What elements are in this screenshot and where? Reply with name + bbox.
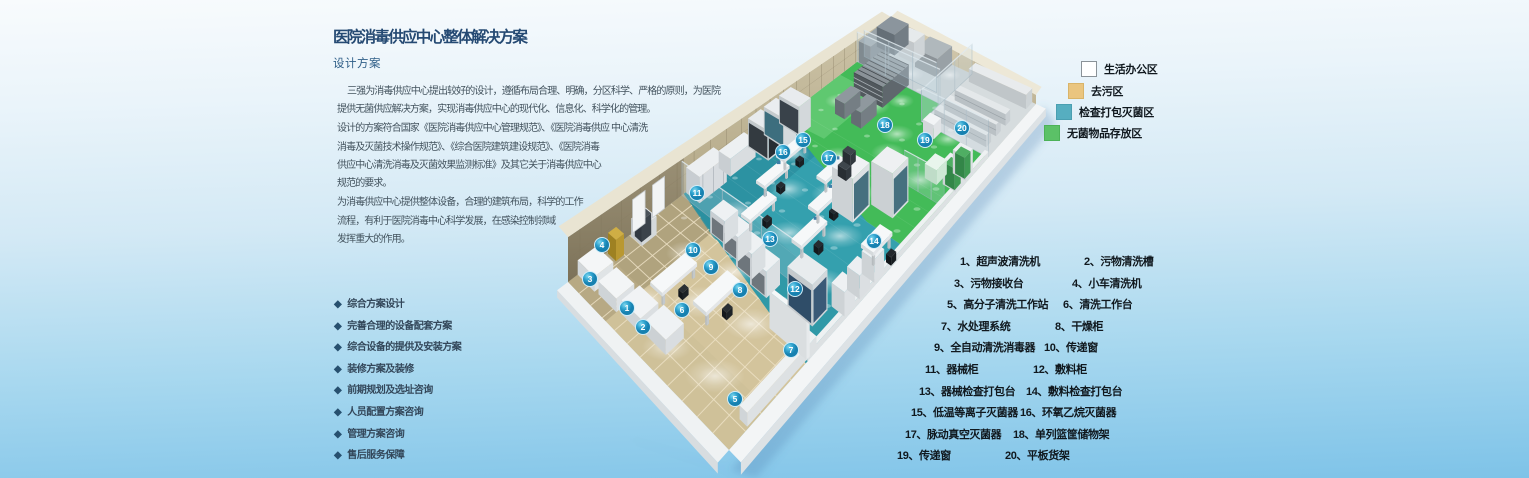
svg-text:4: 4 xyxy=(600,240,605,250)
svg-text:7: 7 xyxy=(789,345,794,355)
svg-text:15: 15 xyxy=(798,135,808,145)
svg-text:2: 2 xyxy=(641,322,646,332)
svg-text:8: 8 xyxy=(738,285,743,295)
svg-text:16: 16 xyxy=(778,147,788,157)
svg-text:9: 9 xyxy=(709,262,714,272)
svg-text:20: 20 xyxy=(957,123,967,133)
svg-text:11: 11 xyxy=(693,188,702,198)
svg-text:14: 14 xyxy=(869,236,879,246)
svg-text:6: 6 xyxy=(680,305,685,315)
svg-text:1: 1 xyxy=(625,303,630,313)
svg-text:17: 17 xyxy=(824,153,834,163)
svg-text:3: 3 xyxy=(588,274,593,284)
svg-text:19: 19 xyxy=(920,135,930,145)
svg-text:10: 10 xyxy=(688,245,698,255)
svg-text:13: 13 xyxy=(765,234,775,244)
svg-text:12: 12 xyxy=(790,284,800,294)
svg-text:5: 5 xyxy=(733,394,738,404)
svg-text:18: 18 xyxy=(880,120,890,130)
